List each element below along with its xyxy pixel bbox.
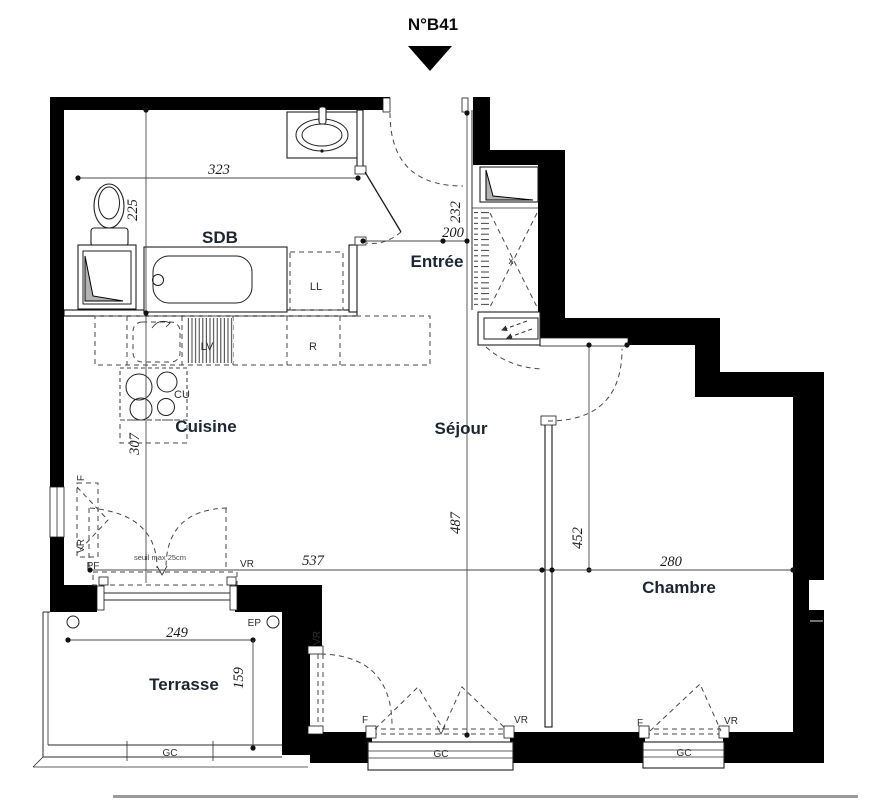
west-window-f-label: F: [76, 475, 87, 481]
closet-mark-label: x: [509, 256, 514, 267]
wall-east-entree: [538, 202, 565, 318]
north-pointer-icon: [408, 46, 452, 71]
wall-shaft-block: [538, 165, 565, 202]
partition-sejour-chambre: [545, 418, 552, 727]
chambre-window-f-label: F: [637, 718, 643, 729]
kitchen-sink: [133, 321, 180, 362]
chambre-gc-label: GC: [677, 748, 692, 759]
wall-step-vertical: [695, 318, 720, 397]
plan-crop-edge: [113, 795, 858, 798]
bathtub: [144, 247, 287, 312]
sejour-window-unit: GC: [366, 687, 514, 770]
chambre-door-recess: [540, 338, 628, 346]
chambre-guardrail: GC: [643, 742, 724, 768]
wall-terrace-pillar: [282, 612, 310, 755]
bathroom-sink: [287, 107, 357, 158]
dim-chambre-width: 280: [660, 554, 683, 570]
entry-door-jamb-left: [383, 98, 390, 112]
floor-plan-page: N°B41: [0, 0, 872, 800]
chambre-window-opening: [650, 684, 721, 731]
room-label-chambre: Chambre: [642, 578, 716, 597]
wall-south-3: [723, 732, 824, 763]
dim-entree-height: 232: [448, 201, 464, 223]
sejour-window-f-label: F: [362, 715, 368, 726]
washing-machine: LL: [290, 252, 343, 310]
pf-label: PF: [87, 561, 100, 572]
washer-label: LL: [310, 281, 322, 293]
toilet: [91, 184, 128, 246]
wall-ne-horizontal: [473, 150, 565, 165]
rain-pipe-label: EP: [248, 618, 262, 629]
wall-east-outer-upper: [809, 397, 824, 580]
terrace-gc-label: GC: [163, 748, 178, 759]
rain-pipe-left: [67, 616, 79, 628]
dim-terrasse-height: 159: [231, 666, 247, 689]
sdb-door-leaf: [365, 172, 401, 232]
dim-sejour-height: 487: [448, 511, 464, 534]
sejour-gc-label: GC: [434, 749, 449, 760]
sejour-window-opening-2: [443, 687, 506, 729]
terrace-slab-corner: [33, 757, 43, 767]
terrace-french-door: seuil max 25cm: [89, 508, 237, 610]
cooktop: CU: [120, 368, 190, 420]
dim-chambre-height: 452: [570, 527, 586, 549]
floor-plan-drawing: N°B41: [0, 0, 872, 800]
pf-sill: [93, 572, 237, 585]
entry-door-jamb-right: [462, 98, 468, 112]
room-label-terrasse: Terrasse: [149, 675, 219, 694]
dim-sdb-height: 225: [125, 199, 141, 221]
sejour-terrace-door-swing: [321, 654, 392, 726]
fridge-label: R: [309, 341, 317, 353]
west-window-vr-label: VR: [76, 539, 87, 553]
dishwasher-label: LV: [201, 341, 214, 353]
pf-center-mark: [157, 566, 167, 575]
technical-shaft-sdb: [78, 245, 136, 309]
wall-ne-vertical: [473, 97, 490, 152]
entree-closet: x: [474, 210, 537, 309]
sejour-window-opening-1: [375, 687, 443, 729]
chambre-door-swing: [548, 349, 622, 421]
chambre-window-unit: GC: [639, 684, 729, 768]
sejour-window-vr-label: VR: [514, 715, 528, 726]
room-label-entree: Entrée: [411, 252, 464, 271]
partition-sdb-entree-upper: [357, 110, 363, 173]
wall-west-upper: [50, 97, 64, 487]
cooktop-label: CU: [174, 389, 190, 401]
sdb-door: [355, 166, 401, 245]
wall-west-lower: [50, 537, 64, 585]
sejour-terrace-door: [308, 646, 392, 734]
wall-south-2: [510, 732, 645, 763]
wall-sw-corner: [50, 585, 97, 612]
sdb-door-swing: [367, 232, 401, 244]
wall-east-inner: [793, 397, 809, 740]
room-label-sdb: SDB: [202, 228, 238, 247]
entry-door-swing: [390, 113, 463, 186]
dim-terrasse-width: 249: [166, 625, 189, 641]
technical-shaft-entree: [480, 167, 538, 202]
pf-vr-label: VR: [240, 559, 254, 570]
room-label-cuisine: Cuisine: [175, 417, 236, 436]
kitchen-fixtures: LV R CU: [95, 316, 430, 443]
sink-tap: [319, 107, 326, 124]
wall-step-horizontal: [720, 372, 824, 397]
room-label-sejour: Séjour: [435, 419, 488, 438]
dim-entree-width: 200: [442, 225, 465, 241]
rain-pipe-right: [267, 616, 279, 628]
wall-north: [50, 97, 390, 110]
dim-cuisine-height: 307: [127, 432, 143, 456]
dishwasher: LV: [187, 318, 233, 363]
apartment-entry-door-symbol: [478, 312, 541, 369]
sejour-guardrail: GC: [368, 742, 513, 770]
plan-title-block: N°B41: [408, 15, 458, 71]
wall-kitchen-terrace: [235, 585, 322, 612]
chambre-window-vr-label: VR: [724, 716, 738, 727]
plan-title: N°B41: [408, 15, 458, 34]
threshold-note: seuil max 25cm: [134, 553, 186, 562]
partition-sdb-entree-lower: [349, 245, 357, 312]
dim-sdb-width: 323: [207, 162, 230, 178]
terrace-door-vr-label: VR: [312, 631, 323, 645]
kitchen-counter: [95, 316, 430, 365]
dim-sejour-width: 537: [302, 553, 325, 569]
